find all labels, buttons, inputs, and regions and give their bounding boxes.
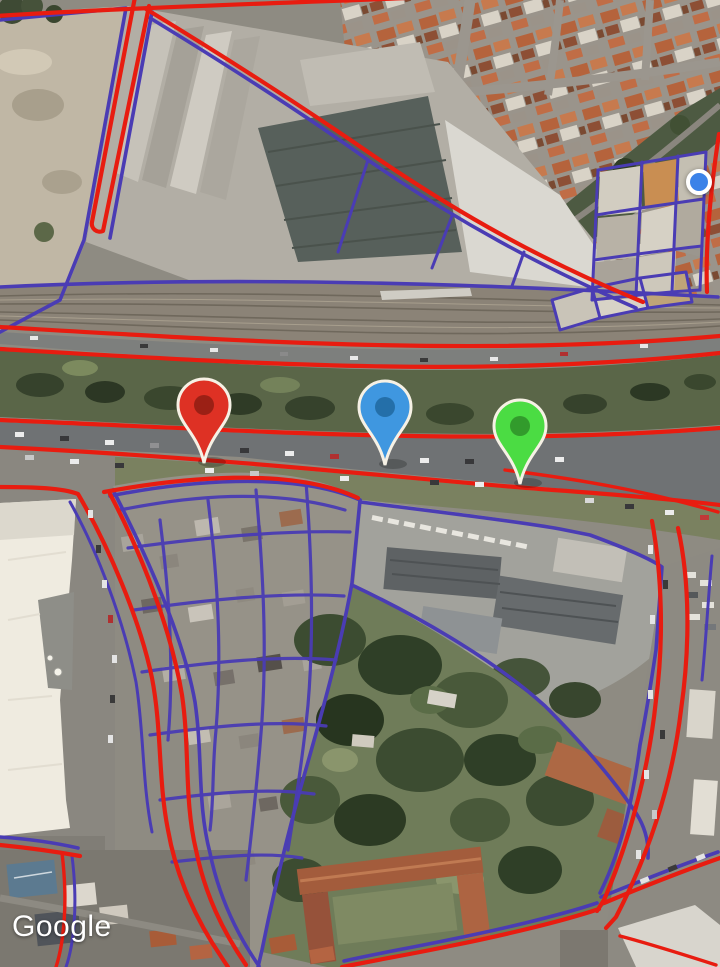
location-dot[interactable] <box>686 169 712 195</box>
green-map-pin[interactable] <box>489 389 551 491</box>
satellite-imagery <box>0 0 720 967</box>
blue-map-pin[interactable] <box>354 370 416 472</box>
satellite-map[interactable]: Google <box>0 0 720 967</box>
red-map-pin[interactable] <box>173 368 235 470</box>
google-watermark: Google <box>12 910 112 944</box>
